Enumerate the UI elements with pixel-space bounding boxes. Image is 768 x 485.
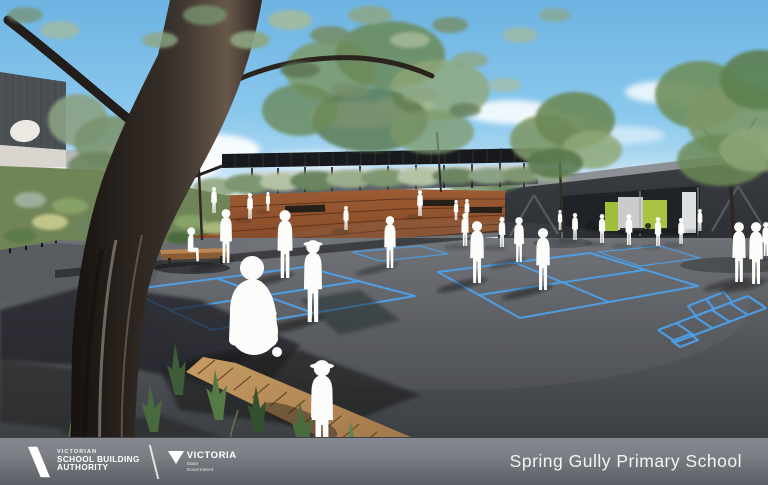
victoria-sub1: State bbox=[187, 462, 237, 466]
vsba-line3: AUTHORITY bbox=[57, 464, 140, 473]
footer-banner: VICTORIAN SCHOOL BUILDING AUTHORITY VICT… bbox=[0, 437, 768, 485]
vsba-line1: VICTORIAN bbox=[57, 450, 140, 456]
victoria-government-logo: VICTORIA State Government bbox=[168, 451, 237, 472]
victoria-name: VICTORIA bbox=[187, 451, 237, 461]
render-image: VICTORIAN SCHOOL BUILDING AUTHORITY VICT… bbox=[0, 0, 768, 485]
vsba-logo: VICTORIAN SCHOOL BUILDING AUTHORITY bbox=[28, 444, 140, 480]
school-name: Spring Gully Primary School bbox=[510, 451, 742, 472]
hat bbox=[304, 242, 323, 247]
white-door bbox=[682, 192, 696, 233]
vsba-wordmark: VICTORIAN SCHOOL BUILDING AUTHORITY bbox=[57, 450, 140, 474]
hat bbox=[310, 363, 334, 369]
vsba-slash-icon bbox=[28, 444, 50, 480]
green-wall-panel bbox=[605, 202, 618, 231]
logo-divider bbox=[148, 445, 158, 479]
victoria-sub2: Government bbox=[187, 468, 237, 472]
courtyard-scene bbox=[0, 0, 768, 485]
victoria-triangle-icon bbox=[168, 451, 185, 466]
logo-group: VICTORIAN SCHOOL BUILDING AUTHORITY VICT… bbox=[28, 444, 237, 480]
victoria-wordmark: VICTORIA State Government bbox=[187, 451, 237, 472]
